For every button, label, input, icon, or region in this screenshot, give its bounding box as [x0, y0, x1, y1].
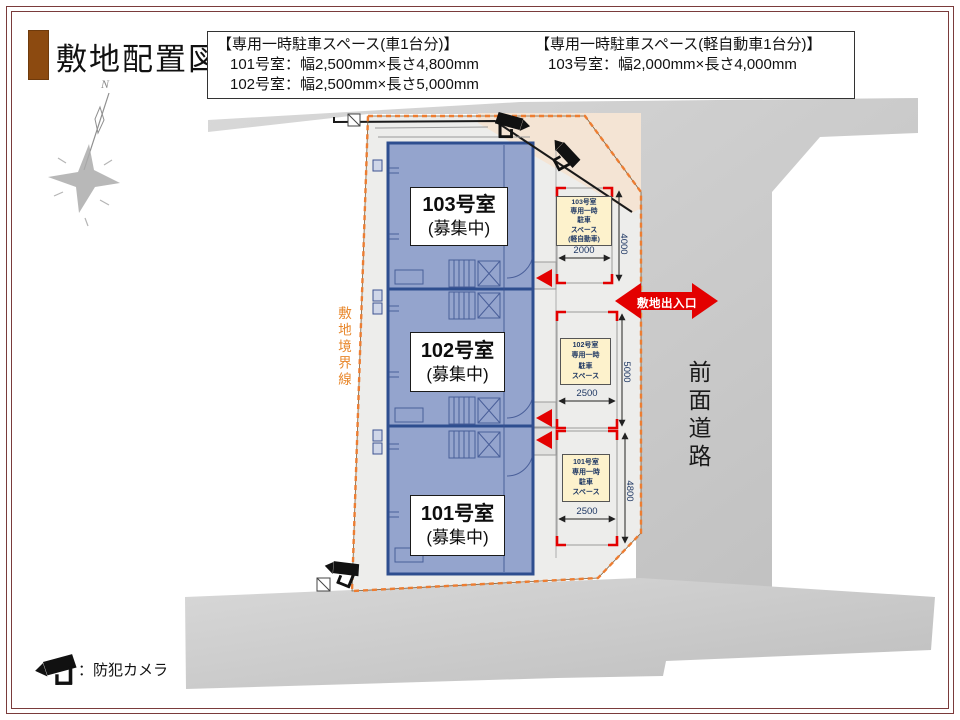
unit-name: 102号室 [411, 338, 504, 364]
notice-heading: 【専用一時駐車スペース(車1台分)】 [217, 35, 479, 55]
front-road-label: 前面道路 [681, 360, 715, 495]
dim-length-101: 4800 [624, 460, 635, 522]
parking-notice-box: 【専用一時駐車スペース(車1台分)】 101号室：幅2,500mm×長さ4,80… [207, 31, 855, 99]
unit-name: 103号室 [411, 192, 507, 218]
parking-label-103: 103号室 専用一時 駐車 スペース (軽自動車) [556, 196, 612, 246]
parking-notice-car: 【専用一時駐車スペース(車1台分)】 101号室：幅2,500mm×長さ4,80… [217, 35, 479, 95]
unit-label-102: 102号室 (募集中) [410, 332, 505, 392]
site-boundary-label: 敷地境界線 [333, 306, 353, 401]
unit-status: (募集中) [411, 364, 504, 386]
compass-rose-icon [48, 93, 120, 226]
parking-label-101: 101号室 専用一時 駐車 スペース [562, 454, 610, 502]
page-title: 敷地配置図 [56, 34, 221, 79]
notice-row: 102号室：幅2,500mm×長さ5,000mm [217, 75, 479, 95]
parking-label-102: 102号室 専用一時 駐車 スペース [560, 338, 611, 385]
dim-width-102: 2500 [557, 388, 617, 399]
parking-notice-kei: 【専用一時駐車スペース(軽自動車1台分)】 103号室：幅2,000mm×長さ4… [535, 35, 822, 75]
site-plan-page: 敷地配置図 【専用一時駐車スペース(車1台分)】 101号室：幅2,500mm×… [0, 0, 960, 720]
unit-name: 101号室 [411, 501, 504, 527]
notice-row: 103号室：幅2,000mm×長さ4,000mm [535, 55, 822, 75]
dim-width-103: 2000 [556, 245, 612, 256]
unit-status: (募集中) [411, 218, 507, 240]
dim-length-102: 5000 [621, 342, 632, 402]
cctv-camera-icon [35, 654, 76, 685]
unit-label-103: 103号室 (募集中) [410, 187, 508, 246]
camera-legend-label: ：防犯カメラ [78, 659, 168, 680]
unit-status: (募集中) [411, 527, 504, 549]
unit-label-101: 101号室 (募集中) [410, 495, 505, 556]
notice-row: 101号室：幅2,500mm×長さ4,800mm [217, 55, 479, 75]
title-accent-bar [28, 30, 49, 80]
dim-width-101: 2500 [557, 506, 617, 517]
dim-length-103: 4000 [618, 216, 629, 272]
notice-heading: 【専用一時駐車スペース(軽自動車1台分)】 [535, 35, 822, 55]
site-entrance-label: 敷地出入口 [633, 295, 701, 311]
compass-north-label: N [101, 77, 109, 92]
